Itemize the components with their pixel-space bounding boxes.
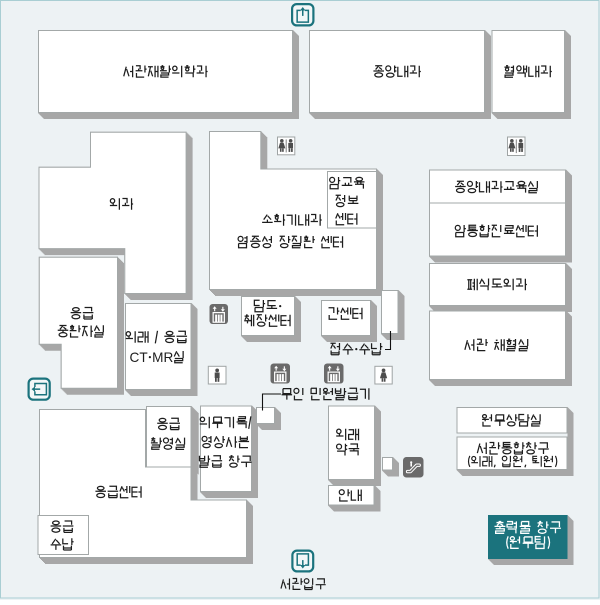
svg-text:MR: MR — [152, 350, 173, 365]
svg-text:CT: CT — [130, 350, 148, 365]
